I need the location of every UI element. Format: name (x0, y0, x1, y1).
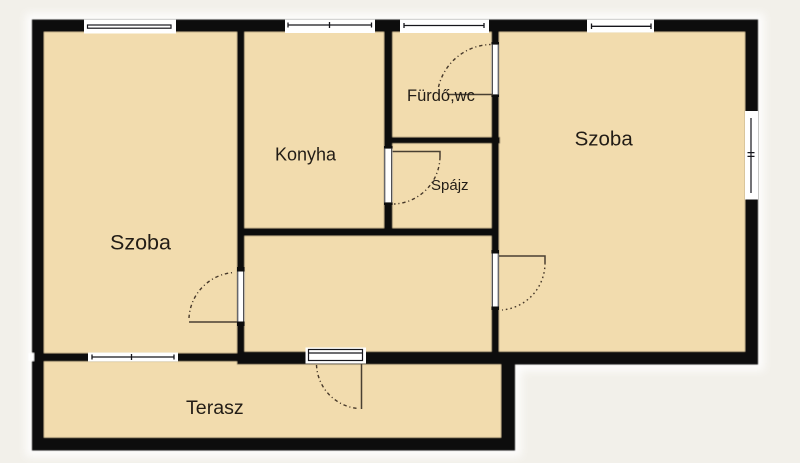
svg-text:Szoba: Szoba (110, 231, 171, 255)
svg-text:Konyha: Konyha (275, 145, 337, 165)
svg-text:Szoba: Szoba (575, 128, 634, 151)
svg-text:Fürdő,wc: Fürdő,wc (407, 87, 475, 105)
svg-text:Terasz: Terasz (186, 397, 244, 419)
svg-text:Spájz: Spájz (431, 177, 469, 194)
